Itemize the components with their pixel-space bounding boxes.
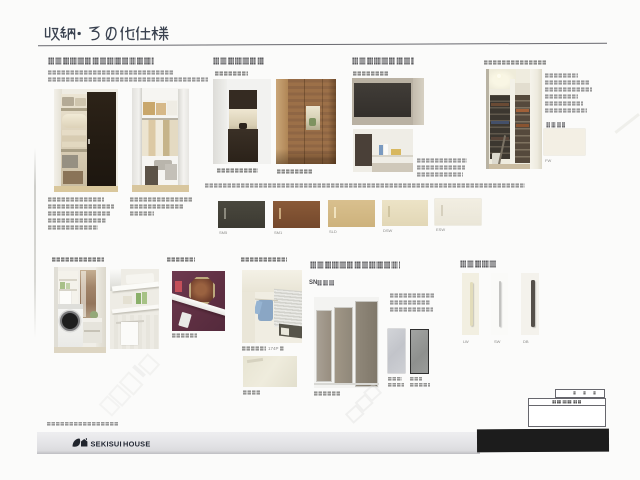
svg-text:HOUSE: HOUSE [123, 439, 151, 448]
svg-text:SEKISUI: SEKISUI [91, 439, 122, 448]
